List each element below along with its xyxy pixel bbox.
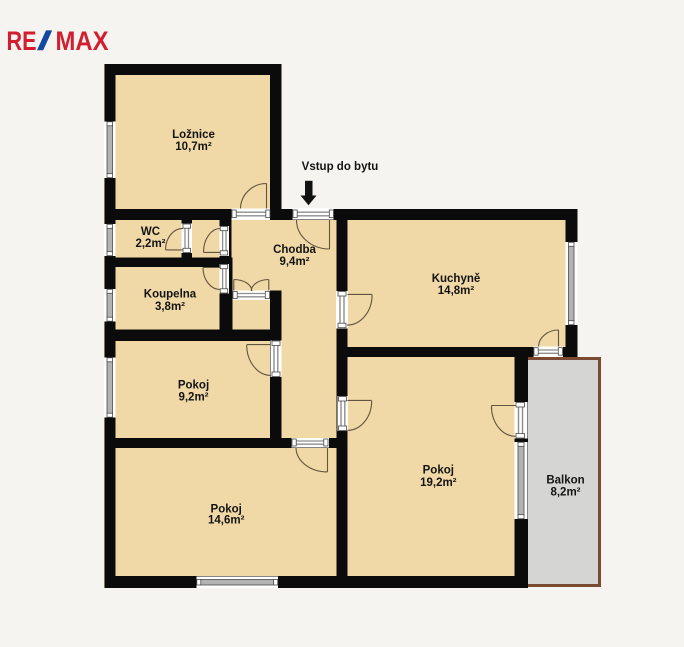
svg-text:Vstup do bytu: Vstup do bytu	[302, 161, 379, 173]
svg-text:Pokoj: Pokoj	[423, 465, 454, 477]
svg-text:Kuchyně: Kuchyně	[432, 273, 481, 285]
svg-text:14,8m²: 14,8m²	[438, 285, 475, 297]
svg-text:Balkon: Balkon	[546, 475, 584, 487]
svg-text:19,2m²: 19,2m²	[420, 477, 457, 489]
svg-text:Pokoj: Pokoj	[178, 380, 209, 392]
svg-text:9,4m²: 9,4m²	[279, 256, 309, 268]
svg-text:Ložnice: Ložnice	[172, 129, 215, 141]
svg-text:MAX: MAX	[56, 27, 109, 57]
svg-text:Koupelna: Koupelna	[144, 289, 197, 301]
svg-text:3,8m²: 3,8m²	[155, 301, 185, 313]
svg-text:14,6m²: 14,6m²	[208, 515, 245, 527]
svg-text:WC: WC	[141, 226, 160, 238]
svg-text:Chodba: Chodba	[273, 244, 316, 256]
svg-text:RE: RE	[7, 27, 37, 57]
svg-text:2,2m²: 2,2m²	[135, 238, 165, 250]
svg-text:10,7m²: 10,7m²	[175, 141, 212, 153]
svg-text:9,2m²: 9,2m²	[178, 392, 208, 404]
svg-text:8,2m²: 8,2m²	[550, 487, 580, 499]
